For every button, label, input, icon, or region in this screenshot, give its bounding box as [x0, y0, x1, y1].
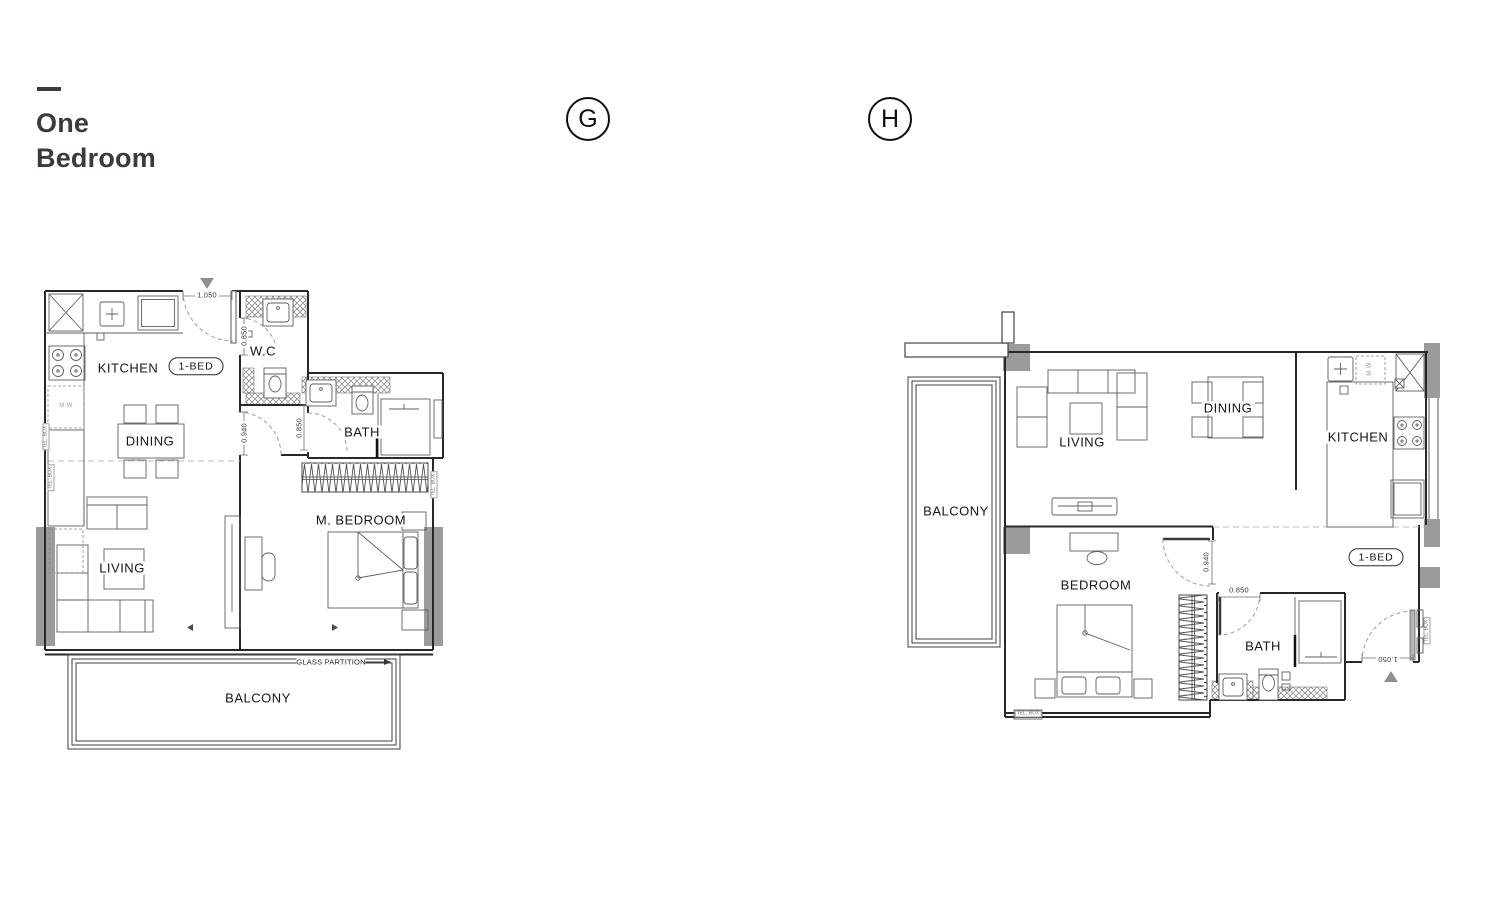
glass-partition-note: GLASS PARTITION — [296, 658, 365, 666]
microwave-label-g: M.W — [59, 403, 73, 409]
dim-bath-door-h: 0.850 — [1227, 586, 1251, 594]
floorplan-sheet: One Bedroom G H KITCHEN 1-BED W.C DINING… — [0, 0, 1500, 900]
room-label-bath-h: BATH — [1243, 640, 1283, 653]
floorplan-linework — [0, 0, 1500, 900]
room-label-bedroom-h: BEDROOM — [1059, 579, 1134, 592]
room-label-kitchen-h: KITCHEN — [1326, 431, 1391, 444]
dim-wc-door-g: 0.850 — [240, 324, 248, 348]
unit-tag-g: 1-BED — [169, 357, 224, 375]
plan-g-wardrobe — [302, 463, 428, 492]
page-title-line2: Bedroom — [36, 141, 156, 176]
tel-box-label-h-2: TEL. BOX — [1015, 711, 1042, 718]
room-label-balcony-g: BALCONY — [223, 692, 293, 705]
room-label-master-bedroom-g: M. BEDROOM — [314, 514, 408, 527]
unit-badge-g: G — [566, 97, 610, 141]
room-label-wc-g: W.C — [248, 345, 278, 358]
plan-g-entry-arrow — [200, 278, 214, 289]
tel-box-label-h-1: TEL. BOX — [1424, 618, 1431, 645]
dim-entry-g: 1.050 — [195, 291, 219, 299]
unit-tag-h: 1-BED — [1349, 548, 1404, 566]
microwave-label-h: M W — [1367, 362, 1373, 376]
plan-h-entry-door-leaf — [1410, 610, 1415, 660]
room-label-kitchen-g: KITCHEN — [96, 362, 161, 375]
room-label-dining-g: DINING — [124, 435, 177, 448]
dim-bath-door-g: 0.850 — [295, 416, 303, 440]
room-label-living-h: LIVING — [1057, 436, 1107, 449]
page-title-line1: One — [36, 106, 156, 141]
tel-box-label-g-2: TEL. BOX — [48, 465, 55, 492]
plan-h-wardrobe — [1179, 595, 1207, 700]
room-label-living-g: LIVING — [97, 562, 147, 575]
plan-h-window — [1429, 398, 1438, 519]
plan-h-entry-arrow — [1384, 671, 1398, 682]
dim-hall-h: 0.940 — [1202, 550, 1210, 574]
room-label-bath-g: BATH — [342, 426, 382, 439]
title-dash — [37, 87, 61, 91]
page-title: One Bedroom — [36, 106, 156, 176]
tel-box-label-g-1: TEL. BOX — [43, 424, 50, 451]
plan-h-exterior-wall-bar — [905, 312, 1014, 357]
dim-entry-h: 1.050 — [1376, 655, 1400, 663]
unit-badge-h: H — [868, 97, 912, 141]
dim-hall-g: 0.940 — [240, 421, 248, 445]
room-label-dining-h: DINING — [1202, 402, 1255, 415]
room-label-balcony-h: BALCONY — [921, 505, 991, 518]
tel-box-label-g-3: TEL. BOX — [431, 472, 438, 499]
